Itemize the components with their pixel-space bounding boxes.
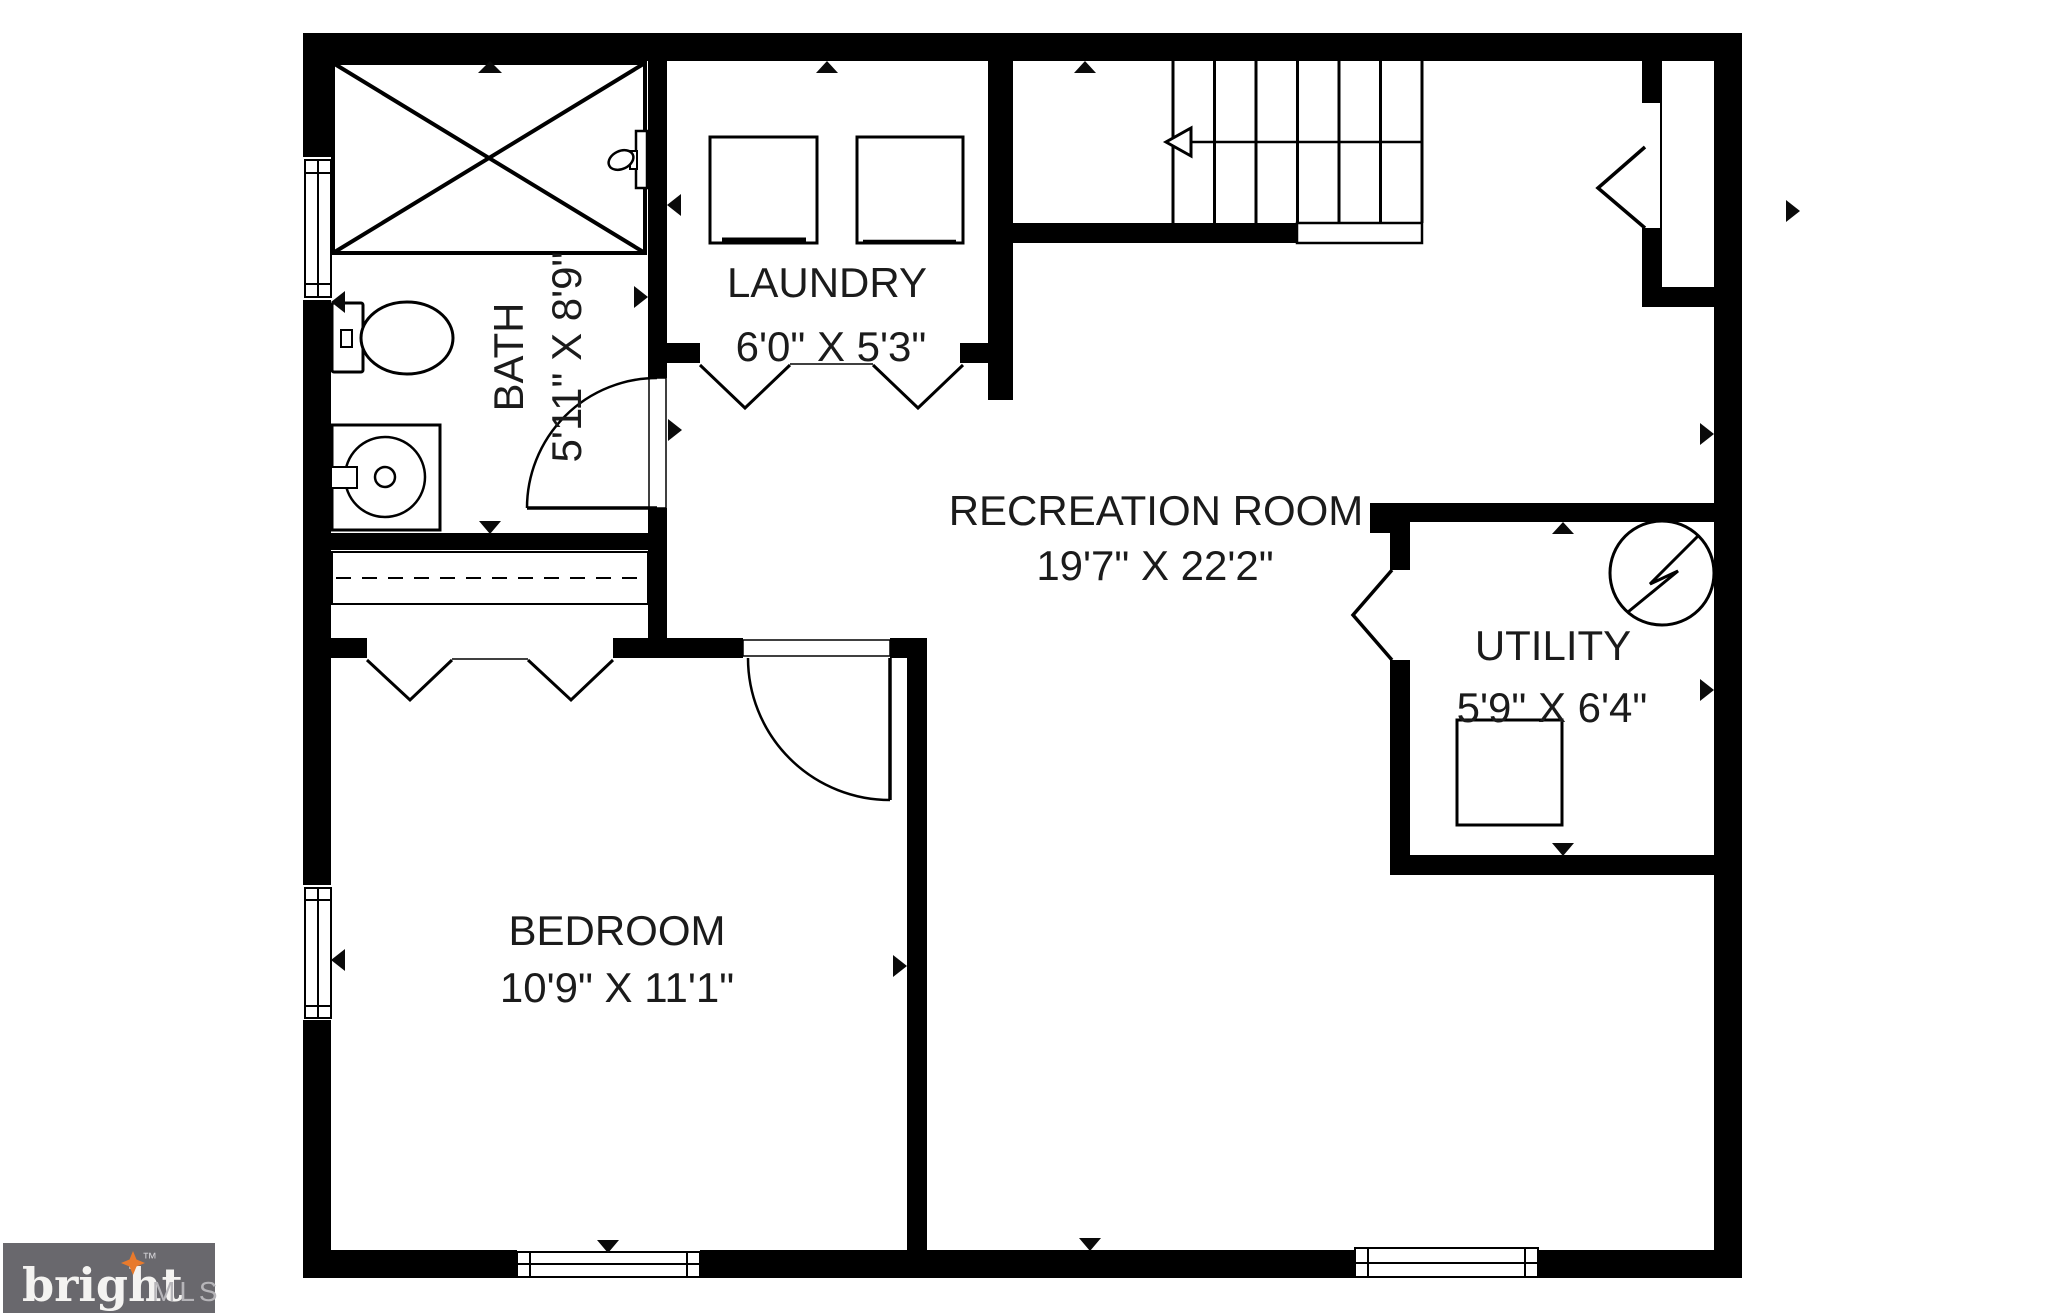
recreation-bottom-window-icon (1355, 1248, 1538, 1277)
bath-room-label: BATH 5'11" X 8'9" (485, 252, 590, 463)
laundry-bifold-doors-icon (700, 364, 963, 408)
room-dimensions: 19'7" X 22'2" (1036, 542, 1273, 589)
room-dimensions: 5'11" X 8'9" (543, 252, 590, 463)
wall-segment (1538, 1250, 1742, 1278)
bedroom-closet-bifold-doors-icon (367, 659, 613, 700)
room-dimensions: 10'9" X 11'1" (500, 964, 734, 1011)
room-name: UTILITY (1475, 622, 1631, 669)
toilet-icon (332, 302, 453, 374)
room-dimensions: 5'9" X 6'4" (1457, 684, 1648, 731)
wall-segment (303, 33, 1742, 61)
recreation-room-label: RECREATION ROOM 19'7" X 22'2" (949, 487, 1364, 589)
stair-railing (1297, 223, 1422, 243)
room-name: RECREATION ROOM (949, 487, 1364, 534)
wall-segment (1714, 33, 1742, 1278)
camera-marker-icon (667, 194, 681, 216)
utility-room-label: UTILITY 5'9" X 6'4" (1457, 622, 1648, 731)
laundry-room-label: LAUNDRY 6'0" X 5'3" (727, 259, 927, 370)
wall-segment (1390, 660, 1410, 875)
camera-marker-icon (816, 61, 838, 73)
shower-icon (333, 63, 647, 253)
stairs-icon (1166, 61, 1422, 243)
bedroom-side-window-icon (305, 888, 331, 1018)
bright-mls-logo: bright ™ MLS (3, 1243, 222, 1313)
room-dimensions: 6'0" X 5'3" (736, 323, 927, 370)
camera-marker-icon (1079, 1238, 1101, 1251)
floor-plan-page: BATH 5'11" X 8'9" LAUNDRY 6'0" X 5'3" RE… (0, 0, 2048, 1315)
wall-segment (303, 1250, 517, 1278)
camera-marker-icon (1552, 843, 1574, 856)
wall-segment (700, 1250, 1355, 1278)
camera-marker-icon (1074, 61, 1096, 73)
camera-marker-icon (1552, 522, 1574, 534)
wall-segment (331, 638, 367, 658)
closet-shelf-and-rod (332, 552, 648, 604)
wall-segment (303, 1020, 331, 1278)
water-heater-icon (1457, 720, 1562, 825)
camera-marker-icon (1700, 679, 1714, 701)
room-name: LAUNDRY (727, 259, 927, 306)
wall-segment (1370, 503, 1717, 522)
sink-faucet-icon (331, 467, 357, 488)
wall-segment (303, 300, 331, 885)
camera-marker-icon (479, 521, 501, 534)
dryer-icon (857, 137, 963, 243)
washer-icon (710, 137, 817, 243)
camera-marker-icon (331, 949, 345, 971)
wall-segment (1662, 287, 1717, 307)
wall-segment (648, 508, 667, 658)
logo-trademark: ™ (142, 1250, 157, 1267)
electrical-panel-icon (1610, 521, 1714, 625)
camera-marker-icon (893, 955, 907, 977)
logo-suffix: MLS (152, 1276, 222, 1307)
bedroom-bottom-window-icon (517, 1252, 700, 1277)
wall-segment (1390, 522, 1410, 570)
camera-marker-icon (1786, 200, 1800, 222)
bedroom-room-label: BEDROOM 10'9" X 11'1" (500, 907, 734, 1011)
wall-segment (890, 638, 927, 658)
wall-segment (1642, 61, 1662, 103)
wall-segment (1390, 855, 1717, 875)
wall-segment (648, 61, 667, 378)
room-name: BATH (485, 303, 532, 412)
wall-segment (1370, 503, 1390, 533)
closet-bifold-door-icon (1598, 103, 1661, 228)
bedroom-door-swing-icon (743, 640, 890, 800)
wall-segment (303, 33, 331, 157)
wall-segment (1642, 228, 1662, 307)
wall-segment (613, 638, 743, 658)
camera-marker-icon (668, 419, 682, 441)
wall-segment (907, 658, 927, 1250)
bath-window-icon (305, 160, 331, 297)
room-name: BEDROOM (508, 907, 725, 954)
stair-direction-arrow (1166, 128, 1191, 156)
utility-bifold-door-icon (1353, 570, 1392, 660)
wall-segment (1013, 223, 1297, 243)
camera-marker-icon (1700, 423, 1714, 445)
camera-marker-icon (634, 286, 648, 308)
sink-icon (331, 425, 440, 530)
floor-plan-drawing: BATH 5'11" X 8'9" LAUNDRY 6'0" X 5'3" RE… (0, 0, 2048, 1315)
wall-segment (960, 343, 1013, 363)
wall-segment (331, 533, 652, 550)
